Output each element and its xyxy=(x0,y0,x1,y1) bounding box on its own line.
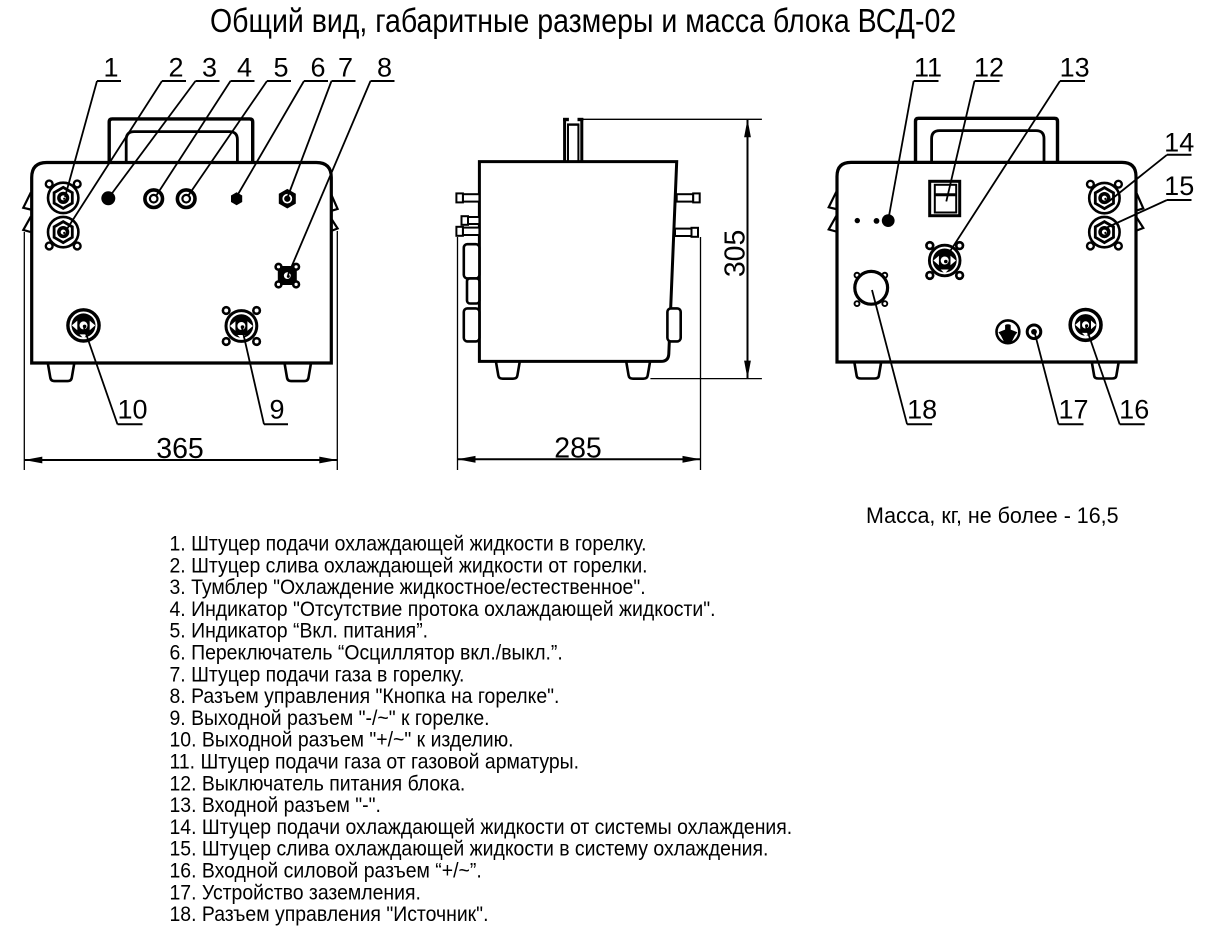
svg-text:6: 6 xyxy=(310,53,325,83)
svg-text:365: 365 xyxy=(156,433,204,465)
svg-text:1. Штуцер подачи охлаждающей ж: 1. Штуцер подачи охлаждающей жидкости в … xyxy=(170,533,647,556)
svg-text:8: 8 xyxy=(377,53,392,83)
svg-text:10: 10 xyxy=(117,395,147,425)
svg-text:2: 2 xyxy=(168,53,183,83)
svg-text:11. Штуцер подачи газа от газо: 11. Штуцер подачи газа от газовой армату… xyxy=(170,751,580,774)
svg-text:16: 16 xyxy=(1119,395,1149,425)
svg-text:13. Входной разъем "-".: 13. Входной разъем "-". xyxy=(170,794,381,817)
svg-text:18. Разъем управления "Источни: 18. Разъем управления "Источник". xyxy=(170,903,489,926)
svg-text:7. Штуцер подачи газа в горелк: 7. Штуцер подачи газа в горелку. xyxy=(170,664,465,687)
svg-text:4: 4 xyxy=(237,53,252,83)
svg-text:5. Индикатор “Вкл. питания”.: 5. Индикатор “Вкл. питания”. xyxy=(170,620,429,643)
svg-text:6. Переключатель “Осциллятор в: 6. Переключатель “Осциллятор вкл./выкл.”… xyxy=(170,642,563,665)
svg-text:3: 3 xyxy=(202,53,217,83)
svg-text:3. Тумблер "Охлаждение жидкост: 3. Тумблер "Охлаждение жидкостное/естест… xyxy=(170,576,646,599)
svg-text:16. Входной силовой разъем “+/: 16. Входной силовой разъем “+/~”. xyxy=(170,860,482,883)
svg-text:17. Устройство заземления.: 17. Устройство заземления. xyxy=(170,882,421,905)
svg-text:Общий вид, габаритные размеры: Общий вид, габаритные размеры и масса бл… xyxy=(210,2,956,39)
svg-text:4. Индикатор "Отсутствие прото: 4. Индикатор "Отсутствие протока охлажда… xyxy=(170,598,716,621)
svg-text:7: 7 xyxy=(338,53,353,83)
svg-text:285: 285 xyxy=(554,433,602,465)
svg-text:10. Выходной разъем "+/~" к из: 10. Выходной разъем "+/~" к изделию. xyxy=(170,729,514,752)
svg-text:1: 1 xyxy=(103,53,118,83)
svg-text:15: 15 xyxy=(1164,171,1194,201)
svg-text:12: 12 xyxy=(974,53,1004,83)
svg-text:9. Выходной разъем "-/~" к гор: 9. Выходной разъем "-/~" к горелке. xyxy=(170,707,490,730)
svg-text:13: 13 xyxy=(1060,53,1090,83)
svg-text:14: 14 xyxy=(1164,128,1194,158)
svg-text:8. Разъем управления "Кнопка н: 8. Разъем управления "Кнопка на горелке"… xyxy=(170,685,560,708)
svg-text:305: 305 xyxy=(720,230,752,278)
svg-text:14. Штуцер подачи охлаждающей: 14. Штуцер подачи охлаждающей жидкости о… xyxy=(170,816,793,839)
svg-text:15. Штуцер слива охлаждающей ж: 15. Штуцер слива охлаждающей жидкости в … xyxy=(170,838,769,861)
svg-text:5: 5 xyxy=(273,53,288,83)
svg-text:11: 11 xyxy=(914,53,942,83)
svg-text:Масса, кг, не более - 16,5: Масса, кг, не более - 16,5 xyxy=(866,503,1119,528)
svg-text:17: 17 xyxy=(1058,395,1088,425)
svg-text:9: 9 xyxy=(269,395,284,425)
svg-text:18: 18 xyxy=(907,395,937,425)
svg-text:12. Выключатель питания блока.: 12. Выключатель питания блока. xyxy=(170,773,466,796)
svg-text:2. Штуцер слива охлаждающей жи: 2. Штуцер слива охлаждающей жидкости от … xyxy=(170,555,648,578)
